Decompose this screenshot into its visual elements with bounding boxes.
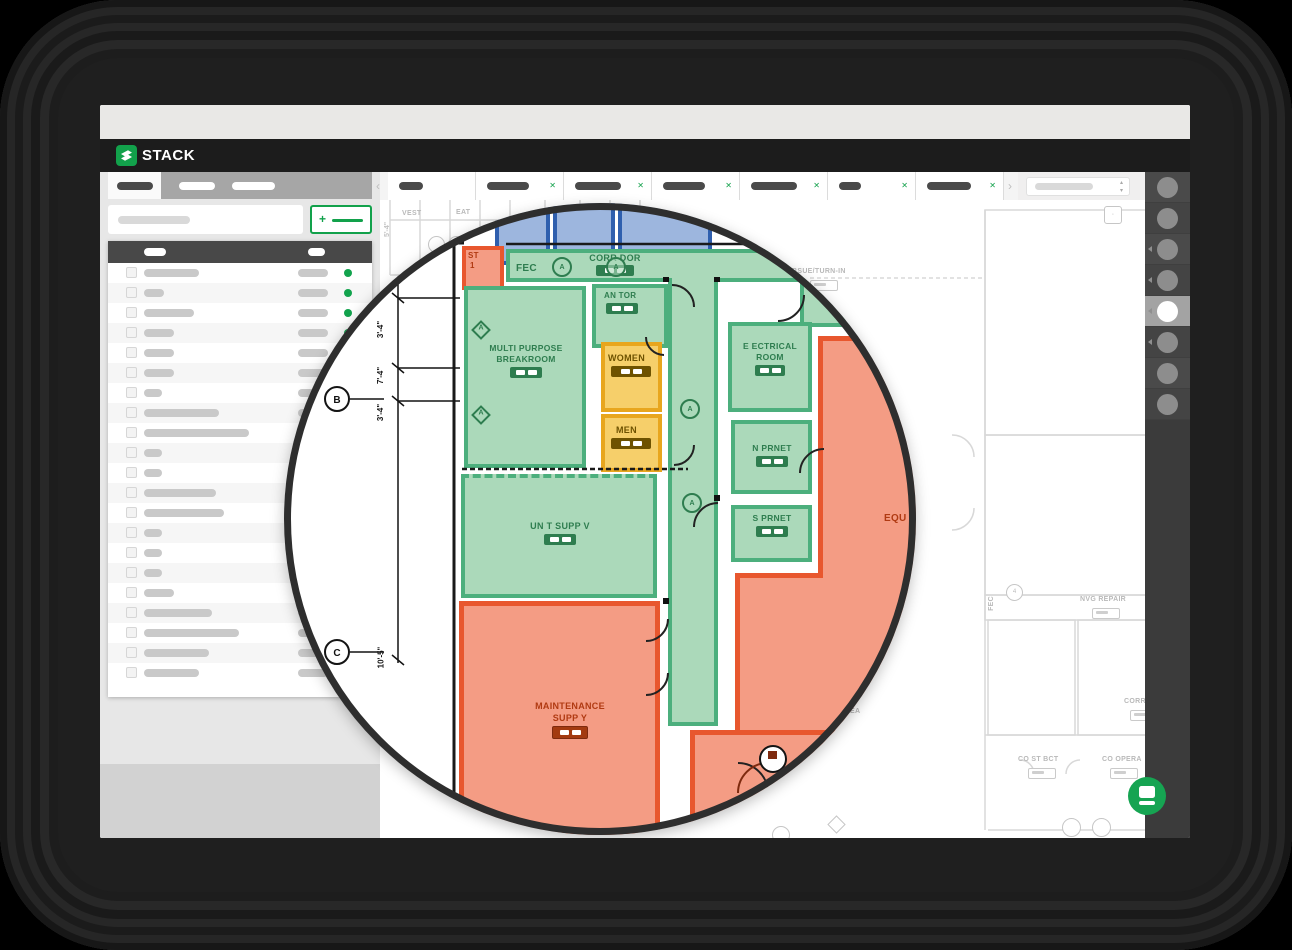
tab-title-pill: [751, 182, 797, 190]
chat-widget-icon: [1139, 786, 1155, 798]
plan-tab[interactable]: [388, 172, 476, 200]
row-name-pill: [144, 469, 162, 477]
row-name-pill: [144, 349, 174, 357]
row-checkbox[interactable]: [126, 627, 137, 638]
bg-quantity-pill: [1028, 768, 1056, 779]
row-checkbox[interactable]: [126, 287, 137, 298]
row-name-pill: [144, 429, 249, 437]
tab-title-pill: [399, 182, 423, 190]
row-name-pill: [144, 369, 174, 377]
plan-tab[interactable]: ✕: [740, 172, 828, 200]
bg-symbol: 4: [1006, 584, 1023, 601]
toolbar-tool[interactable]: [1145, 203, 1190, 234]
toolbar-tool-active[interactable]: [1145, 296, 1190, 327]
toolbar-tool[interactable]: [1145, 172, 1190, 203]
row-name-pill: [144, 569, 162, 577]
bg-symbol: ◦: [1104, 206, 1122, 224]
help-chat-fab[interactable]: [1128, 777, 1166, 815]
row-checkbox[interactable]: [126, 467, 137, 478]
row-checkbox[interactable]: [126, 507, 137, 518]
row-name-pill: [144, 669, 199, 677]
browser-titlebar: [100, 105, 1190, 139]
row-checkbox[interactable]: [126, 547, 137, 558]
row-checkbox[interactable]: [126, 447, 137, 458]
bg-symbol: [1092, 818, 1111, 837]
sidebar-tab-strip[interactable]: [161, 172, 372, 199]
row-checkbox[interactable]: [126, 667, 137, 678]
tab-title-pill: [927, 182, 971, 190]
row-checkbox[interactable]: [126, 607, 137, 618]
tool-icon: [1157, 208, 1178, 229]
row-name-pill: [144, 649, 209, 657]
tool-icon: [1157, 394, 1178, 415]
plan-tab[interactable]: ✕: [476, 172, 564, 200]
flyout-caret-icon: [1148, 246, 1152, 252]
close-tab-icon[interactable]: ✕: [813, 181, 820, 190]
row-name-pill: [144, 629, 239, 637]
page-select-strip: ▴▾: [1018, 172, 1145, 200]
plan-tab[interactable]: ✕: [564, 172, 652, 200]
bg-quantity-pill: [1092, 608, 1120, 619]
row-checkbox[interactable]: [126, 487, 137, 498]
close-tab-icon[interactable]: ✕: [989, 181, 996, 190]
row-name-pill: [144, 449, 162, 457]
row-checkbox[interactable]: [126, 407, 137, 418]
brand-name: STACK: [142, 147, 195, 164]
bg-quantity-pill: [1110, 768, 1138, 779]
row-name-pill: [144, 529, 162, 537]
dimension-label: 10'-5": [376, 647, 385, 669]
row-checkbox[interactable]: [126, 367, 137, 378]
tab-title-pill: [487, 182, 529, 190]
plan-tab[interactable]: ✕: [916, 172, 1004, 200]
bg-room-label: CORR: [1124, 698, 1146, 705]
bg-room-label: CO ST BCT: [1018, 756, 1058, 763]
tool-icon: [1157, 177, 1178, 198]
tool-icon: [1157, 270, 1178, 291]
row-checkbox[interactable]: [126, 527, 137, 538]
row-name-pill: [144, 589, 174, 597]
row-checkbox[interactable]: [126, 387, 137, 398]
toolbar-tool[interactable]: [1145, 327, 1190, 358]
tablet-bezel: STACK ▾ + ‹ ✕: [0, 0, 1292, 950]
row-checkbox[interactable]: [126, 587, 137, 598]
row-name-pill: [144, 609, 212, 617]
tabs-scroll-left-icon[interactable]: ‹: [376, 179, 380, 193]
row-checkbox[interactable]: [126, 347, 137, 358]
flyout-caret-icon: [1148, 308, 1152, 314]
row-name-pill: [144, 409, 219, 417]
sidebar-tab-active[interactable]: [108, 172, 161, 199]
close-tab-icon[interactable]: ✕: [901, 181, 908, 190]
tool-icon: [1157, 301, 1178, 322]
minimize-window-button[interactable]: [141, 115, 154, 128]
app-navbar: STACK ▾: [100, 139, 1190, 172]
dimension-label: 7'-4": [376, 367, 385, 384]
stack-logo-icon[interactable]: [116, 145, 137, 166]
spinner-icons[interactable]: ▴▾: [1120, 179, 1123, 195]
dimension-label: 3'-4": [376, 404, 385, 421]
search-input[interactable]: [108, 205, 303, 234]
drawing-toolbar: [1145, 172, 1190, 838]
tabs-scroll-right-icon[interactable]: ›: [1008, 179, 1012, 193]
tool-icon: [1157, 363, 1178, 384]
lens-linework: [284, 203, 916, 835]
door-tag: A: [552, 257, 572, 277]
tab-title-pill: [663, 182, 705, 190]
door-tag: A: [682, 493, 702, 513]
tab-title-pill: [575, 182, 621, 190]
row-name-pill: [144, 329, 174, 337]
plan-tab[interactable]: ✕: [828, 172, 916, 200]
maximize-window-button[interactable]: [162, 115, 175, 128]
page-select-dropdown[interactable]: ▴▾: [1026, 177, 1130, 196]
door-tag: A: [680, 399, 700, 419]
bg-symbol: [1062, 818, 1081, 837]
toolbar-tool[interactable]: [1145, 234, 1190, 265]
tool-icon: [1157, 239, 1178, 260]
row-name-pill: [144, 289, 164, 297]
magnifier-lens: CORR DOR FEC ST 1 AN TOR MULTI PURPOSE B…: [284, 203, 916, 835]
bg-room-label: NVG REPAIR: [1080, 596, 1126, 603]
row-name-pill: [144, 389, 162, 397]
row-name-pill: [144, 489, 216, 497]
bg-room-label: FEC: [988, 596, 995, 611]
row-name-pill: [144, 549, 162, 557]
browser-window: STACK ▾ + ‹ ✕: [100, 105, 1190, 838]
plan-tab[interactable]: ✕: [652, 172, 740, 200]
row-checkbox[interactable]: [126, 267, 137, 278]
toolbar-tool[interactable]: [1145, 265, 1190, 296]
row-checkbox[interactable]: [126, 307, 137, 318]
flyout-caret-icon: [1148, 277, 1152, 283]
sidebar-tabbar: [108, 172, 372, 199]
search-placeholder-pill: [118, 216, 190, 224]
grid-bubble: C: [324, 639, 350, 665]
dimension-label: 3'-4": [376, 321, 385, 338]
row-checkbox[interactable]: [126, 327, 137, 338]
row-name-pill: [144, 309, 194, 317]
close-tab-icon[interactable]: ✕: [549, 181, 556, 190]
row-name-pill: [144, 269, 199, 277]
toolbar-tool[interactable]: [1145, 358, 1190, 389]
close-tab-icon[interactable]: ✕: [637, 181, 644, 190]
tab-title-pill: [839, 182, 861, 190]
row-checkbox[interactable]: [126, 567, 137, 578]
grid-bubble: B: [324, 386, 350, 412]
row-checkbox[interactable]: [126, 427, 137, 438]
row-name-pill: [144, 509, 224, 517]
flyout-caret-icon: [1148, 339, 1152, 345]
toolbar-tool[interactable]: [1145, 389, 1190, 420]
close-window-button[interactable]: [120, 115, 133, 128]
row-checkbox[interactable]: [126, 647, 137, 658]
close-tab-icon[interactable]: ✕: [725, 181, 732, 190]
bg-room-label: CO OPERA: [1102, 756, 1142, 763]
tool-icon: [1157, 332, 1178, 353]
door-tag: A: [606, 257, 626, 277]
